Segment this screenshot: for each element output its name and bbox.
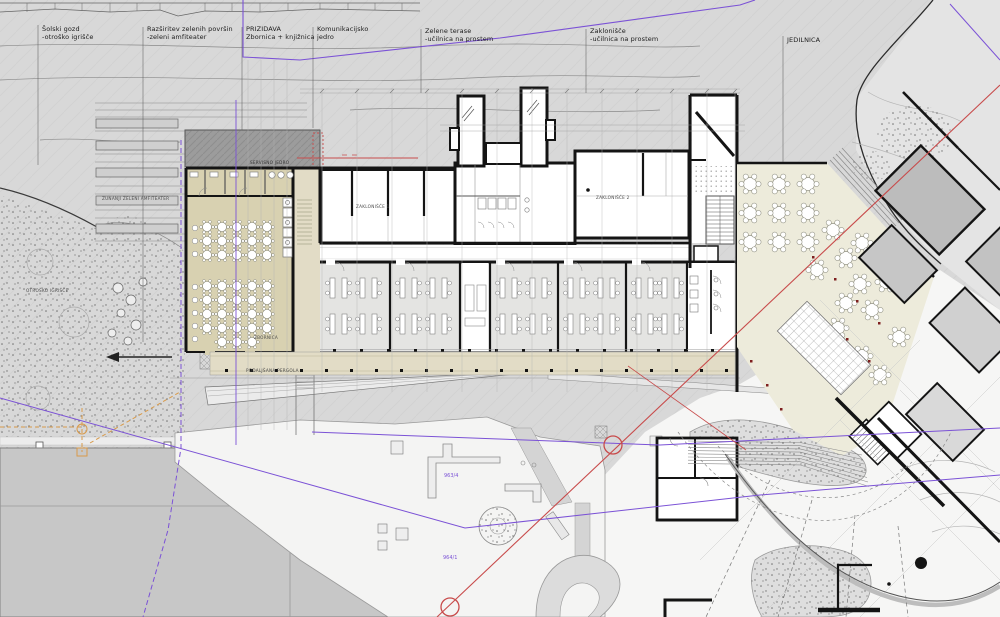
- label-prizidava: PRIZIDAVA Zbornica + knjižnica: [246, 25, 315, 42]
- amphitheater-label: ZUNANJI ZELENI AMFITEATER: [102, 196, 169, 201]
- label-school-forest: Šolski gozd -otroško igrišče: [42, 25, 93, 42]
- label-line: Zaklonišče: [590, 27, 658, 35]
- playground-label: OTROŠKO IGRIŠČE: [26, 288, 69, 293]
- label-line: -otroško igrišče: [42, 33, 93, 41]
- shelter1-label: ZAKLONIŠČE 1: [356, 204, 390, 209]
- label-dining-room: JEDILNICA: [787, 36, 820, 44]
- label-line: Zelene terase: [425, 27, 493, 35]
- service-core-label: SERVISNO JEDRO: [250, 160, 290, 165]
- site-plan-drawing: 963/4 964/1 ZUNANJI ZELENI AMFITEATER OT…: [0, 0, 1000, 617]
- label-line: -učilnica na prostem: [425, 35, 493, 43]
- classroom-wing: [320, 259, 737, 352]
- label-line: PRIZIDAVA: [246, 25, 315, 33]
- label-line: -zeleni amfiteater: [147, 33, 233, 41]
- label-line: jedro: [317, 33, 368, 41]
- label-line: JEDILNICA: [787, 36, 820, 44]
- label-communication-core: Komunikacijsko jedro: [317, 25, 368, 42]
- parcel-number: 963/4: [444, 473, 458, 479]
- label-shelter: Zaklonišče -učilnica na prostem: [590, 27, 658, 44]
- shelter2-label: ZAKLONIŠČE 2: [596, 195, 630, 200]
- stairs: [706, 196, 734, 244]
- parcel-number: 964/1: [443, 555, 457, 561]
- staff-room-tables: [200, 220, 275, 348]
- label-line: Razširitev zelenih površin: [147, 25, 233, 33]
- label-green-extension: Razširitev zelenih površin -zeleni amfit…: [147, 25, 233, 42]
- label-green-terraces: Zelene terase -učilnica na prostem: [425, 27, 493, 44]
- staff-room-label: ZBORNICA: [254, 335, 278, 340]
- pergola-label: PODALJŠANA PERGOLA: [246, 368, 299, 373]
- label-line: Zbornica + knjižnica: [246, 33, 315, 41]
- label-line: -učilnica na prostem: [590, 35, 658, 43]
- label-line: Komunikacijsko: [317, 25, 368, 33]
- label-line: Šolski gozd: [42, 25, 93, 33]
- wc-block: [688, 263, 735, 352]
- plan-canvas: 963/4 964/1 ZUNANJI ZELENI AMFITEATER OT…: [0, 0, 1000, 617]
